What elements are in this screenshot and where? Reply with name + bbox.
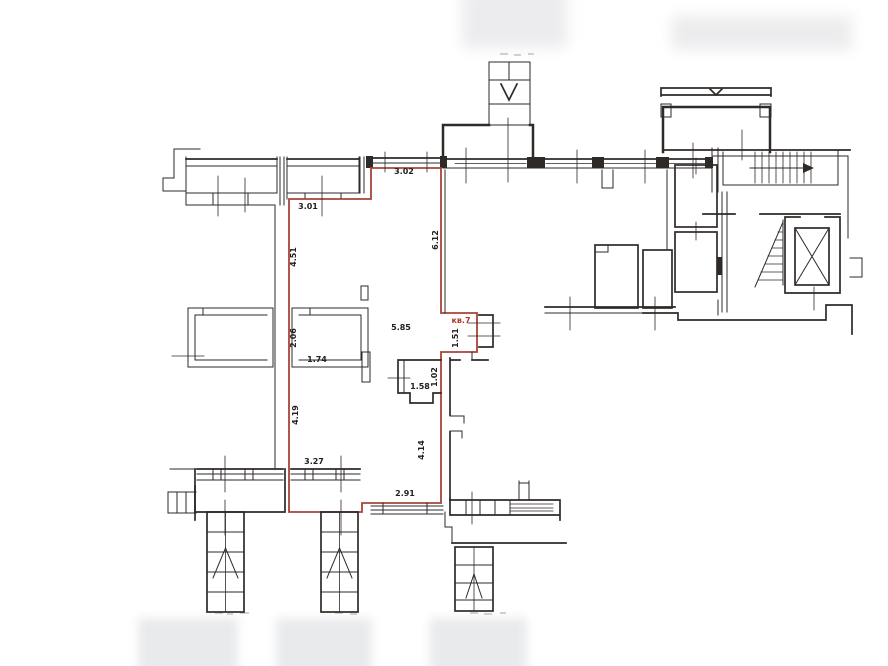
outdoor-stair-right bbox=[445, 512, 566, 611]
duct-hatch bbox=[717, 257, 722, 275]
vent-stub bbox=[602, 170, 613, 188]
dim-east-wall-lower: 4.14 bbox=[417, 440, 426, 460]
window-band-neighbour bbox=[450, 481, 560, 520]
dim-closet-width: 1.74 bbox=[307, 355, 327, 364]
dim-west-wall-upper: 4.51 bbox=[289, 247, 298, 267]
entry-door-jamb bbox=[479, 315, 493, 347]
shaft-room-lower bbox=[675, 232, 717, 292]
closet-apartment bbox=[292, 308, 368, 367]
dim-east-wall: 6.12 bbox=[431, 230, 440, 250]
artifact-top-left bbox=[462, 0, 567, 48]
entry-vestibule-top bbox=[443, 62, 533, 157]
artifact-bottom-2 bbox=[276, 618, 372, 666]
outdoor-stair-left bbox=[207, 512, 244, 612]
dim-closet-depth: 2.06 bbox=[289, 328, 298, 348]
east-wall-stubs bbox=[848, 156, 862, 277]
dim-bottom-bay: 3.27 bbox=[304, 457, 324, 466]
winder-stairs bbox=[755, 220, 783, 287]
scan-artifacts bbox=[138, 0, 852, 666]
pilaster-upper bbox=[361, 286, 368, 300]
stair-arrow-right bbox=[803, 163, 814, 173]
outdoor-stair-middle bbox=[321, 512, 358, 612]
artifact-top-right bbox=[672, 16, 852, 50]
balcony-arrow bbox=[710, 89, 722, 95]
floor-plan-svg: 3.023.014.516.125.85кв.71.512.061.741.02… bbox=[0, 0, 888, 666]
closet-left bbox=[188, 308, 273, 367]
built-in-closets bbox=[188, 286, 370, 382]
small-room-right bbox=[643, 250, 672, 308]
artifact-bottom-3 bbox=[430, 618, 527, 666]
bottom-bays-and-stairs bbox=[168, 469, 566, 612]
stair-flight bbox=[723, 150, 838, 185]
artifact-bottom-1 bbox=[138, 618, 238, 666]
right-block-rooms bbox=[545, 165, 727, 315]
dim-bottom-wall: 2.91 bbox=[395, 489, 415, 498]
dim-bath-width: 1.58 bbox=[410, 382, 430, 391]
stair-direction-arrow-down bbox=[501, 84, 517, 100]
dimension-labels: 3.023.014.516.125.85кв.71.512.061.741.02… bbox=[289, 167, 471, 498]
dim-west-wall-lower: 4.19 bbox=[291, 405, 300, 425]
dim-bath-depth: 1.02 bbox=[430, 367, 439, 387]
porch-left bbox=[168, 486, 196, 520]
apartment-number: кв.7 bbox=[451, 316, 470, 325]
floor-plan-canvas: 3.023.014.516.125.85кв.71.512.061.741.02… bbox=[0, 0, 888, 666]
dim-entry-niche: 1.51 bbox=[451, 328, 460, 348]
dim-top-window: 3.02 bbox=[394, 167, 414, 176]
window-bays-top bbox=[186, 156, 447, 205]
exterior-step-left bbox=[163, 149, 200, 191]
small-room-left bbox=[595, 245, 638, 308]
wing-bottom-wall bbox=[643, 305, 852, 334]
window-band-apartment bbox=[371, 503, 443, 514]
artifact-specks bbox=[215, 53, 534, 615]
top-wall-windows bbox=[443, 157, 713, 188]
dim-upper-left-wall: 3.01 bbox=[298, 202, 318, 211]
interior-walls bbox=[275, 170, 493, 500]
dim-room-width: 5.85 bbox=[391, 323, 411, 332]
elevator-shaft bbox=[785, 217, 840, 293]
balcony-bay-walls bbox=[663, 107, 770, 152]
